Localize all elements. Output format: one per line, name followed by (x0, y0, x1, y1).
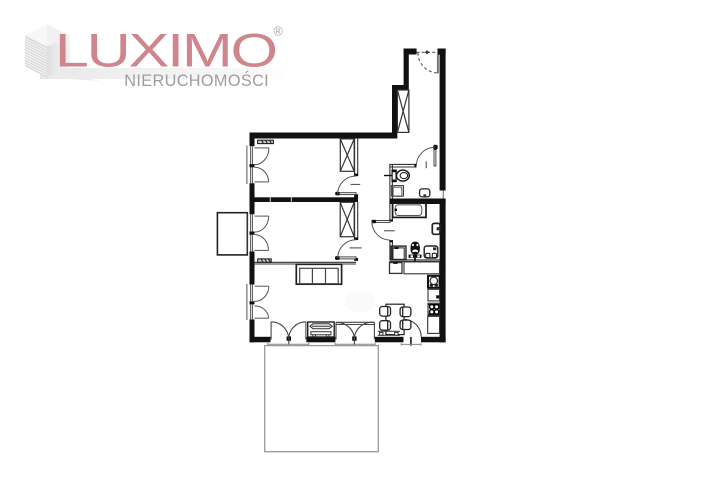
svg-text:®: ® (274, 25, 284, 39)
svg-text:NIERUCHOMOŚCI: NIERUCHOMOŚCI (124, 71, 269, 90)
svg-text:LUXIMO: LUXIMO (55, 24, 276, 77)
